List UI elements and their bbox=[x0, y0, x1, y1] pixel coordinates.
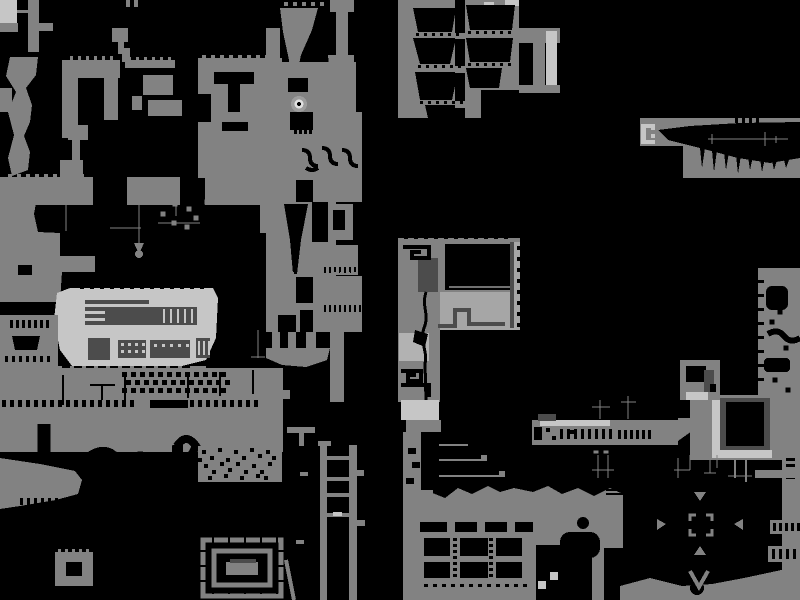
game-map bbox=[0, 0, 800, 600]
map-viewport bbox=[0, 0, 800, 600]
